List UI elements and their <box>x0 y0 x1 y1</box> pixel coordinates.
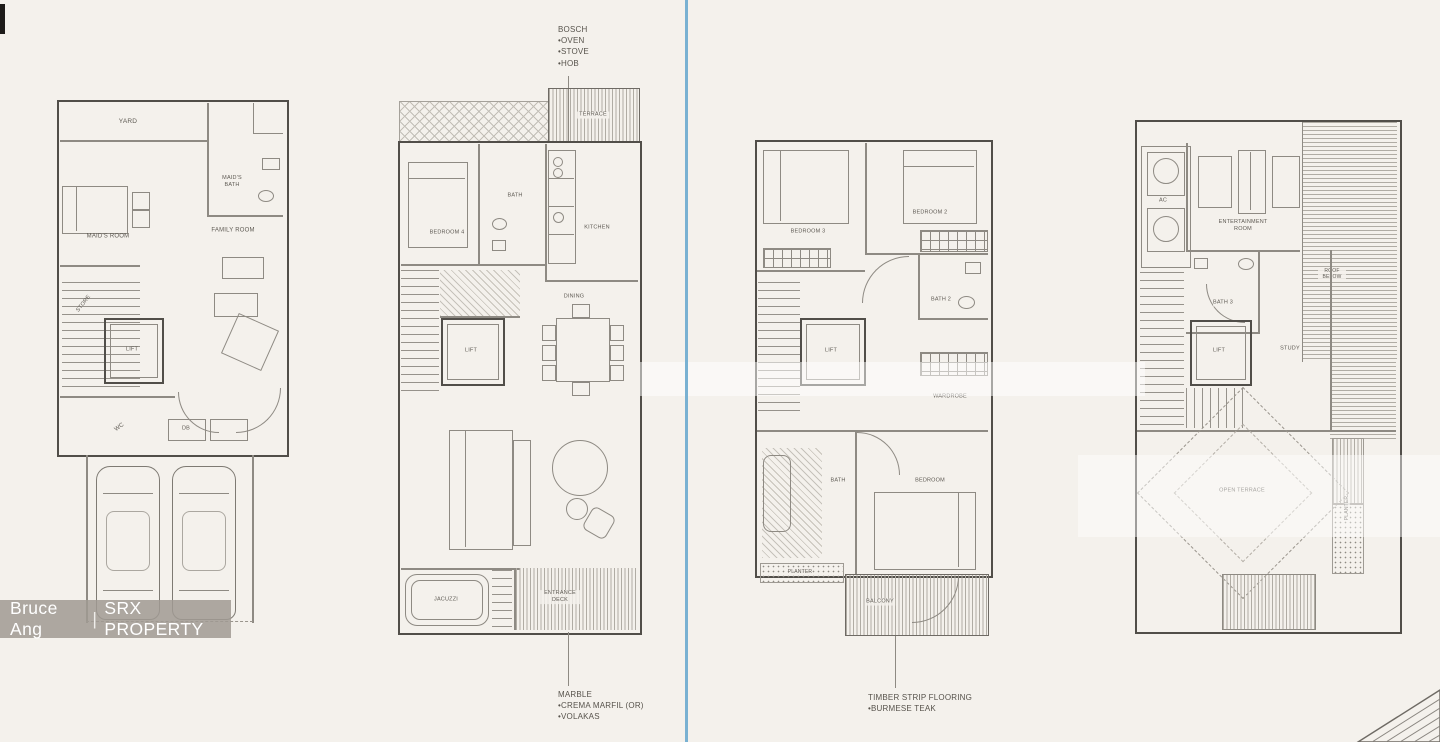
watermark-separator: | <box>92 609 97 630</box>
ac-fan-icon <box>1153 216 1179 242</box>
floorplan-sheet: YARD MAID'S BATH MAID'S ROOM FAMILY ROOM… <box>0 0 1440 742</box>
plan4-ent-wall-v <box>1186 143 1188 250</box>
entertainment-room-label: ENTERTAINMENT ROOM <box>1211 219 1275 233</box>
plan4-study-wall-v <box>1330 250 1332 430</box>
roof-below-label: ROOF BELOW <box>1318 268 1346 281</box>
overlay-band <box>640 362 1145 396</box>
study-label: STUDY <box>1280 346 1300 353</box>
roof-gable-icon <box>1348 686 1440 742</box>
watermark-brand: SRX PROPERTY <box>104 598 231 640</box>
roof-hatch <box>1302 122 1397 362</box>
overlay-band <box>1078 455 1440 537</box>
sink-icon <box>1194 258 1208 269</box>
seat-icon <box>1272 156 1300 208</box>
seat-icon <box>1198 156 1232 208</box>
table-icon <box>1238 150 1266 214</box>
plan4-ent-wall-h <box>1186 250 1300 252</box>
bottom-ledge-hatch <box>1222 574 1316 630</box>
table-line <box>1250 152 1251 210</box>
roof-ledge-hatch <box>1330 362 1396 440</box>
watermark-bar: Bruce Ang | SRX PROPERTY <box>0 600 231 638</box>
bath3-label: BATH 3 <box>1213 300 1233 307</box>
page-divider-line <box>685 0 688 742</box>
lift-label: LIFT <box>1213 348 1225 355</box>
toilet-icon <box>1238 258 1254 270</box>
watermark-agent: Bruce Ang <box>10 598 85 640</box>
ac-fan-icon <box>1153 158 1179 184</box>
ac-label: AC <box>1158 198 1168 205</box>
staircase <box>1140 272 1184 428</box>
plan4-bath3-wall-v <box>1258 250 1260 332</box>
